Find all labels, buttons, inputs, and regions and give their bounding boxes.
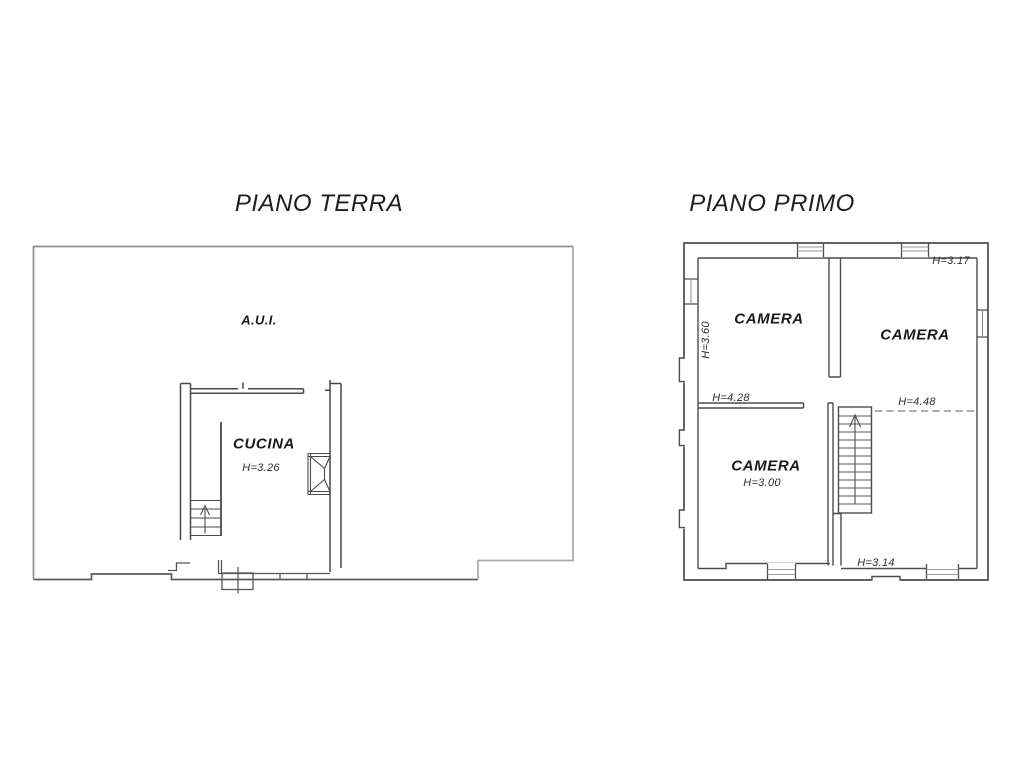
primo-windows	[684, 244, 988, 582]
terra-wall-top-left	[34, 247, 574, 580]
flue-funnel-lines	[311, 457, 331, 492]
stairs-piano-primo	[839, 407, 872, 513]
room-label-camera-sw: CAMERA	[731, 458, 800, 475]
ceiling-height-camera-ne: H=3.17	[932, 255, 970, 267]
stairs-piano-terra	[191, 501, 222, 536]
floor-plan-drawing	[0, 0, 1024, 768]
floor-plan-sheet: PIANO TERRA PIANO PRIMO A.U.I. CUCINA H=…	[0, 0, 1024, 768]
annotation-h-448: H=4.48	[898, 396, 936, 408]
room-label-aui: A.U.I.	[241, 313, 277, 328]
ceiling-height-camera-nw: H=3.60	[700, 321, 712, 359]
flue-inner-border	[308, 454, 330, 495]
window-bottom1-mask	[768, 563, 796, 579]
title-piano-terra: PIANO TERRA	[235, 190, 403, 218]
piano-terra-outline	[34, 247, 574, 580]
terra-bottom-wall-details	[168, 560, 330, 580]
primo-wall-inner	[698, 258, 977, 569]
cucina-wall-top	[191, 383, 304, 394]
flue-outer-box	[308, 454, 330, 495]
ceiling-height-camera-sw: H=3.00	[743, 477, 781, 489]
stair-treads-terra	[191, 501, 222, 536]
cucina-wall-left	[181, 384, 191, 541]
room-label-cucina: CUCINA	[233, 436, 295, 453]
primo-wall-central-upper	[829, 258, 841, 377]
annotation-h-314: H=3.14	[857, 557, 895, 569]
ceiling-height-cucina: H=3.26	[242, 462, 280, 474]
title-piano-primo: PIANO PRIMO	[689, 190, 855, 218]
piano-primo-walls	[684, 243, 988, 580]
flue-symbol	[308, 454, 330, 495]
terra-wall-right-step	[478, 247, 573, 580]
terra-wall-bottom	[34, 574, 479, 580]
room-label-camera-ne: CAMERA	[880, 327, 949, 344]
cucina-wall-right	[325, 380, 341, 572]
threshold-mask	[873, 577, 900, 582]
window-bottom2-mask	[927, 563, 959, 579]
annotation-h-428: H=4.28	[712, 392, 750, 404]
cucina-walls	[181, 380, 342, 572]
room-label-camera-nw: CAMERA	[734, 311, 803, 328]
primo-wall-outer	[684, 243, 988, 580]
